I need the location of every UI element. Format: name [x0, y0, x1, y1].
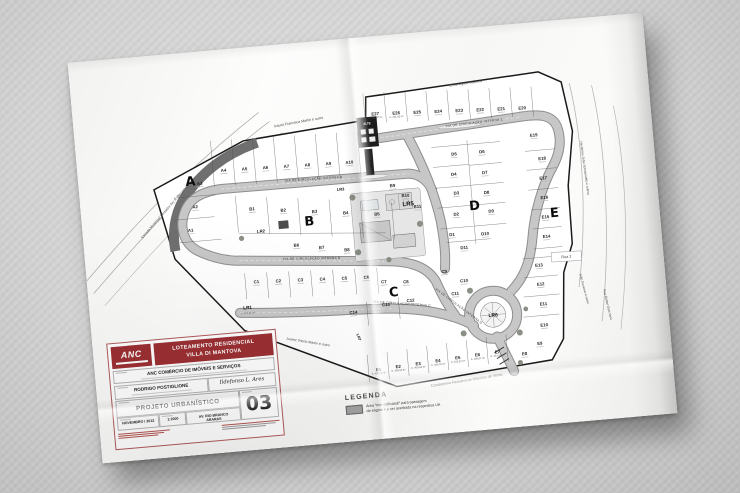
leisure-label: LR3 [337, 186, 346, 192]
pool [362, 199, 379, 210]
lot-label: E24 [434, 108, 443, 114]
lot-label: D8 [484, 190, 491, 196]
lot-label: B9 [390, 183, 397, 189]
lot-label: E22 [476, 107, 485, 113]
lot-label: D2 [453, 211, 460, 217]
street-label-external: João Davanso e outro [578, 273, 590, 304]
lot-label: E9 [537, 341, 543, 346]
scale-field: 1:1000 [159, 412, 187, 427]
legend-swatch [345, 404, 363, 414]
lot-label: B1 [249, 206, 256, 212]
lot-label: C2 [275, 278, 282, 284]
lot-label: E23 [455, 108, 464, 114]
lot-label: C5 [341, 275, 348, 281]
lot-label: E20 [518, 105, 527, 111]
lot-label: D5 [451, 151, 458, 157]
lot-label: A9 [325, 161, 332, 167]
lot-label: C10 [460, 278, 469, 284]
lot-label: A3 [197, 181, 204, 187]
lot-label: A5 [242, 166, 249, 172]
lot-label: E13 [535, 262, 544, 268]
title-block: ANC LOTEAMENTO RESIDENCIAL VILLA DI MANT… [106, 329, 285, 450]
lot-label: D1 [449, 232, 456, 238]
lot-label: A7 [283, 163, 290, 169]
lot-label: D9 [488, 208, 495, 214]
lot-label: E21 [497, 106, 506, 112]
lot-label: D7 [482, 170, 489, 176]
lot-label: B10 [401, 193, 410, 199]
lot-label: B4 [343, 210, 350, 216]
lot-label: B6 [293, 242, 300, 248]
photo-backdrop: SLTE A1A2A3A4A5A6A7A8A9A10B1B2B3B4B5B6B7… [0, 0, 740, 493]
plan-sheet: SLTE A1A2A3A4A5A6A7A8A9A10B1B2B3B4B5B6B7… [68, 13, 678, 464]
street-label-external: Izaura Francisca Martin e outro [274, 116, 324, 129]
lot-label: D11 [460, 245, 469, 251]
block-letter: E [549, 206, 559, 222]
block-letter: C [388, 285, 399, 301]
lot-label: C3 [297, 277, 304, 283]
footnote-lines-left [118, 429, 170, 440]
lot-label: C9 [441, 269, 448, 275]
lot-label: C8 [403, 279, 410, 285]
street-label-internal: VIA DE CIRCULAÇÃO INTERNA B [283, 255, 341, 261]
date-field: NOVEMBRO / 2012 [117, 415, 160, 432]
anc-logo: ANC [111, 344, 153, 369]
street-label-external: Rua 2 [561, 255, 571, 260]
lot-label: D3 [453, 190, 460, 196]
leisure-label: LR1 [243, 305, 253, 311]
street-label-external: Herdeiros João Schiavinatto e outros [579, 141, 591, 195]
lot-label: E14 [542, 233, 551, 239]
leisure-label: LR6 [488, 312, 498, 319]
lot-label: C11 [451, 291, 460, 297]
lot-label: B11 [413, 204, 422, 210]
lot-label: A10 [345, 159, 354, 165]
lot-label: B8 [344, 247, 351, 253]
lr5-leisure-area [350, 188, 426, 262]
lot-label: C4 [319, 276, 326, 282]
lot-label: E16 [540, 194, 549, 200]
lot-label: C7 [381, 279, 388, 285]
leisure-label: LR2 [257, 228, 266, 234]
lot-label: A4 [221, 167, 228, 173]
lot-label: D10 [481, 231, 490, 237]
leisure-label: LR5 [402, 201, 414, 208]
lot-label: C6 [363, 274, 370, 280]
lot-label: A2 [192, 204, 199, 210]
lot-label: D6 [479, 149, 486, 155]
lot-label: C14 [349, 310, 358, 316]
lot-label: E11 [539, 301, 547, 307]
lot-label: B2 [280, 207, 287, 213]
lot-label: C1 [253, 279, 260, 285]
block-letter: D [469, 199, 481, 215]
building [393, 233, 416, 248]
utility-label: SLTE [363, 121, 371, 126]
leisure-label: LR4 [368, 160, 373, 168]
lot-label: E25 [413, 109, 422, 115]
sheet-number: 03 [239, 387, 279, 420]
lot-label: A8 [304, 162, 311, 168]
lot-label: E12 [537, 281, 546, 287]
anc-logo-text: ANC [120, 349, 142, 361]
lot-label: E10 [540, 322, 549, 328]
lot-label: D4 [451, 171, 458, 177]
lot-label: E8 [522, 351, 528, 356]
block-letter: B [304, 214, 315, 230]
lot-label: E18 [538, 156, 547, 162]
lot-label: B5 [374, 211, 381, 217]
lot-label: A1 [188, 228, 195, 234]
lot-label: A6 [262, 165, 269, 171]
lot-label: E19 [530, 132, 539, 138]
lot-label: E17 [539, 175, 548, 181]
lr2-square [278, 220, 289, 229]
lot-label: E15 [541, 214, 550, 220]
lot-label: B7 [319, 245, 326, 251]
